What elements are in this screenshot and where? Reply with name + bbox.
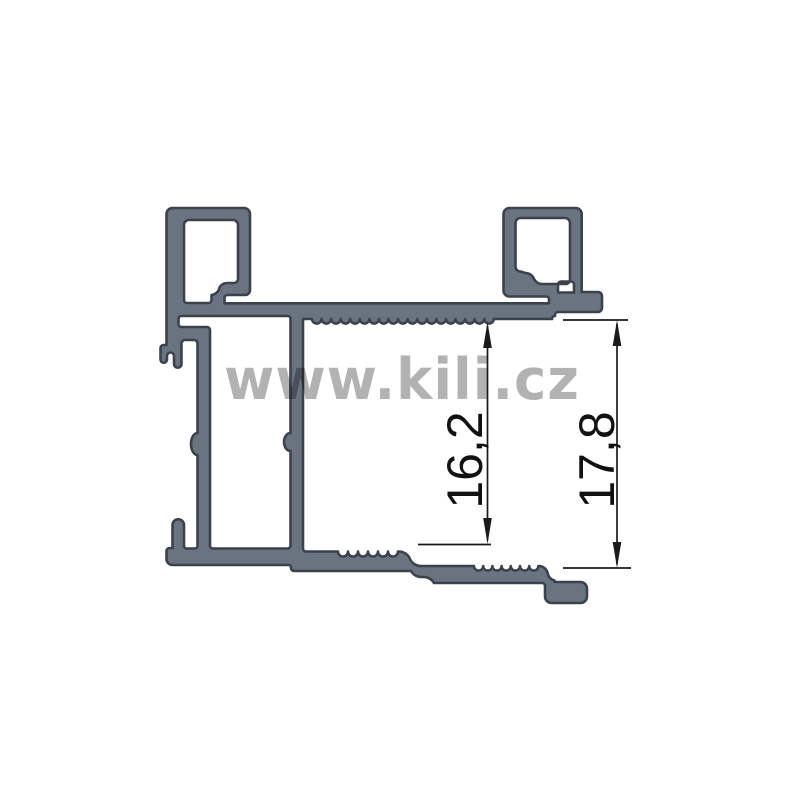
- arrow-up-icon: [483, 322, 492, 348]
- watermark-text: www.kili.cz: [224, 347, 580, 413]
- dimension-label-16-2: 16,2: [437, 411, 493, 508]
- arrow-down-icon: [483, 518, 492, 544]
- technical-drawing-canvas: www.kili.cz 16,2 17,8: [0, 0, 800, 800]
- arrow-up-icon: [613, 320, 622, 346]
- profile-drawing: www.kili.cz 16,2 17,8: [0, 0, 800, 800]
- arrow-down-icon: [613, 542, 622, 568]
- dimension-label-17-8: 17,8: [569, 411, 625, 508]
